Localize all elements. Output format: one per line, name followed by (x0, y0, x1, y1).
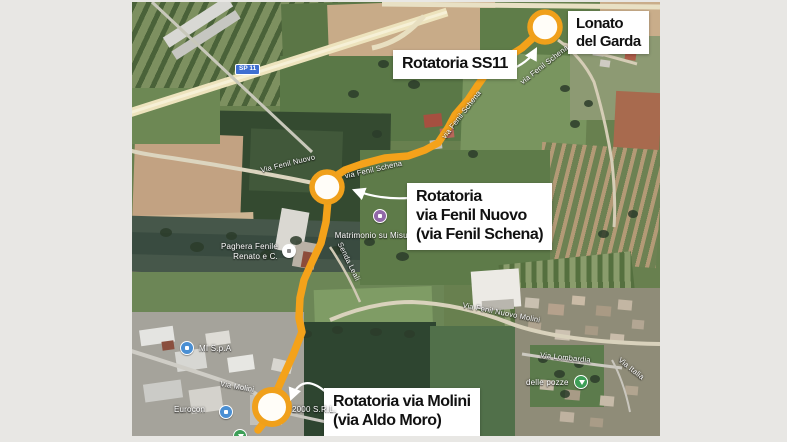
park-poi-icon[interactable] (574, 375, 588, 389)
building (572, 295, 586, 305)
tree-blob (370, 328, 382, 336)
callout-line: Rotatoria SS11 (402, 55, 508, 74)
down-arrow-glyph (238, 434, 244, 436)
building (555, 329, 571, 340)
tree-blob (226, 232, 237, 240)
poi-label-paghera-line2: Renato e C. (204, 252, 278, 261)
poi-label-matrimonio: Matrimonio su Misura (333, 231, 417, 240)
callout-rotatoria-fenil-nuovo: Rotatoria via Fenil Nuovo (via Fenil Sch… (407, 183, 552, 250)
poi-label-paghera-line1: Paghera Fenile (204, 242, 278, 251)
shopping-poi-icon[interactable] (219, 405, 233, 419)
tree-blob (300, 330, 312, 338)
tree-blob (584, 100, 593, 107)
building (560, 411, 575, 422)
satellite-map[interactable]: Via Fenil Nuovo via Fenil Schena via Fen… (132, 2, 660, 436)
terrain-patch (132, 88, 220, 144)
tree-blob (372, 130, 382, 138)
tree-blob (598, 230, 609, 238)
tree-blob (332, 326, 343, 334)
down-arrow-glyph (579, 380, 585, 385)
tree-blob (468, 150, 478, 158)
poi-label-pozze: delle pozze (526, 378, 569, 387)
tree-blob (570, 120, 580, 128)
building (423, 113, 442, 128)
poi-label-mi-spa: MI S.p.A (199, 344, 231, 353)
tree-blob (396, 252, 409, 261)
tree-blob (348, 90, 359, 98)
building (548, 303, 565, 315)
callout-line: Rotatoria (416, 188, 543, 207)
tree-blob (590, 375, 600, 383)
tree-blob (190, 242, 204, 252)
terrain-patch (534, 142, 660, 268)
tree-blob (408, 80, 420, 89)
building (632, 319, 645, 329)
building (625, 385, 639, 395)
tree-blob (554, 370, 565, 378)
tree-blob (404, 330, 415, 338)
poi-label-eurocon: Eurocon (174, 405, 205, 414)
callout-rotatoria-ss11: Rotatoria SS11 (393, 50, 517, 79)
callout-lonato-del-garda: Lonato del Garda (568, 11, 649, 54)
building (161, 340, 174, 351)
tree-blob (378, 60, 389, 68)
building (596, 305, 612, 316)
business-poi-icon[interactable] (282, 244, 296, 258)
park-poi-icon[interactable] (233, 429, 247, 436)
building (430, 139, 443, 149)
callout-line: del Garda (576, 33, 641, 51)
poi-glyph (224, 410, 228, 414)
callout-rotatoria-via-molini: Rotatoria via Molini (via Aldo Moro) (324, 388, 480, 436)
shopping-poi-icon[interactable] (180, 341, 194, 355)
building (610, 333, 625, 344)
tree-blob (560, 390, 570, 398)
building (585, 325, 599, 335)
wedding-poi-icon[interactable] (373, 209, 387, 223)
building (600, 395, 615, 406)
poi-glyph (287, 249, 291, 253)
building (600, 59, 611, 67)
tree-blob (160, 228, 172, 237)
callout-line: (via Aldo Moro) (333, 412, 471, 431)
poi-glyph (378, 214, 382, 218)
building (250, 395, 282, 425)
callout-line: (via Fenil Schena) (416, 226, 543, 245)
page-background: Via Fenil Nuovo via Fenil Schena via Fen… (0, 0, 787, 442)
building (590, 417, 604, 427)
building (525, 297, 540, 308)
poi-glyph (185, 346, 189, 350)
callout-line: Rotatoria via Molini (333, 393, 471, 412)
callout-line: via Fenil Nuovo (416, 207, 543, 226)
sp11-road-shield-icon: SP 11 (235, 64, 260, 75)
callout-line: Lonato (576, 15, 641, 33)
building (618, 299, 633, 310)
poi-label-2000-srl: 2000 S.R.L. (292, 405, 336, 414)
tree-blob (628, 210, 638, 218)
tree-blob (560, 85, 570, 92)
